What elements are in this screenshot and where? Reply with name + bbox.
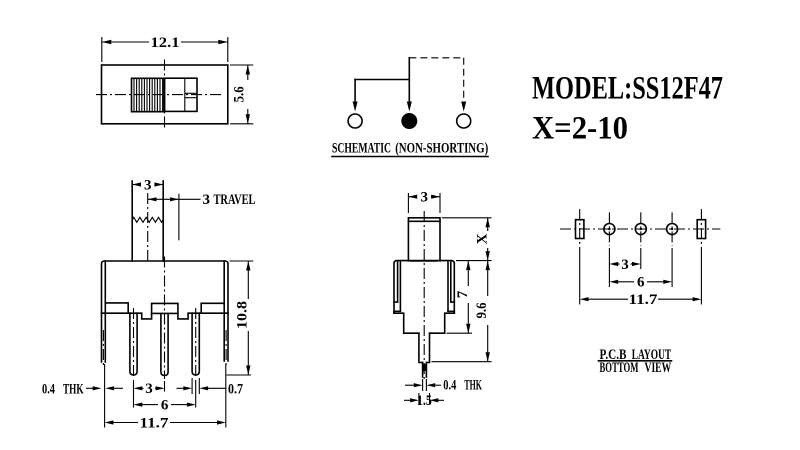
svg-text:6: 6 [161, 397, 169, 413]
svg-text:7: 7 [455, 290, 471, 298]
svg-text:10.8: 10.8 [235, 301, 251, 329]
svg-text:0.4: 0.4 [443, 378, 456, 394]
svg-text:11.7: 11.7 [629, 292, 659, 308]
svg-text:MODEL:SS12F47: MODEL:SS12F47 [532, 71, 723, 107]
svg-text:3: 3 [145, 381, 153, 397]
svg-text:9.6: 9.6 [474, 302, 490, 318]
svg-text:TRAVEL: TRAVEL [214, 192, 256, 208]
svg-text:3: 3 [144, 178, 152, 194]
svg-text:3: 3 [420, 190, 428, 206]
svg-text:BOTTOM: BOTTOM [600, 360, 639, 376]
svg-text:12.1: 12.1 [151, 35, 180, 51]
svg-text:VIEW: VIEW [645, 360, 672, 376]
svg-text:X=2-10: X=2-10 [532, 111, 628, 147]
svg-text:THK: THK [464, 378, 482, 394]
svg-text:1.5: 1.5 [417, 393, 432, 409]
svg-text:0.4: 0.4 [42, 381, 55, 397]
svg-text:3: 3 [621, 257, 629, 273]
svg-text:3: 3 [203, 192, 211, 208]
svg-text:X: X [475, 233, 491, 244]
svg-text:(NON-SHORTING): (NON-SHORTING) [395, 141, 488, 157]
svg-text:11.7: 11.7 [140, 415, 170, 431]
svg-text:5.6: 5.6 [232, 86, 248, 102]
svg-text:SCHEMATIC: SCHEMATIC [332, 141, 391, 157]
svg-text:THK: THK [63, 381, 84, 397]
svg-text:0.7: 0.7 [228, 381, 243, 397]
svg-text:6: 6 [637, 275, 645, 291]
